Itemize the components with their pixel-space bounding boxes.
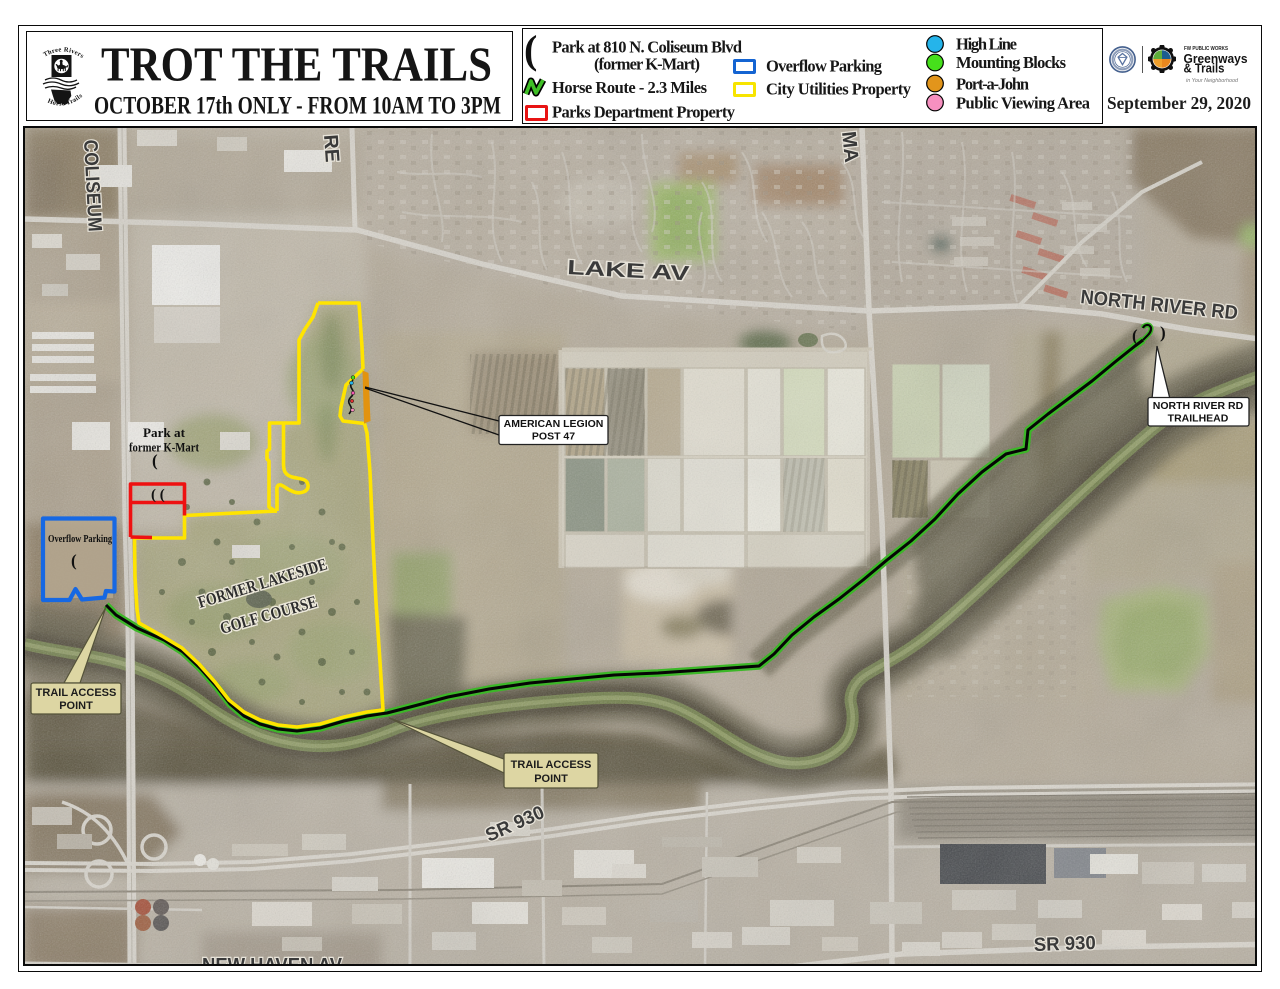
svg-text:Horse Route - 2.3 Miles: Horse Route - 2.3 Miles	[552, 78, 708, 97]
svg-text:TRAILHEAD: TRAILHEAD	[1168, 413, 1229, 425]
svg-text:High Line: High Line	[956, 35, 1017, 54]
svg-text:(: (	[152, 451, 158, 470]
svg-text:TROT THE TRAILS: TROT THE TRAILS	[101, 37, 492, 92]
svg-text:Public Viewing Area: Public Viewing Area	[956, 94, 1090, 113]
svg-text:POINT: POINT	[59, 700, 93, 712]
svg-text:(: (	[1132, 326, 1138, 345]
svg-text:in Your Neighborhood: in Your Neighborhood	[1186, 78, 1239, 84]
svg-text:): )	[1160, 323, 1166, 342]
svg-text:TRAIL ACCESS: TRAIL ACCESS	[511, 759, 592, 771]
svg-text:Overflow Parking: Overflow Parking	[766, 57, 883, 76]
svg-text:Port-a-John: Port-a-John	[956, 75, 1029, 94]
svg-text:former K-Mart: former K-Mart	[129, 441, 200, 455]
svg-text:Overflow Parking: Overflow Parking	[48, 533, 112, 545]
svg-text:City Utilities Property: City Utilities Property	[766, 80, 912, 99]
svg-text:NEW HAVEN AV: NEW HAVEN AV	[202, 955, 343, 966]
svg-text:( (: ( (	[151, 487, 165, 503]
svg-text:Park at: Park at	[143, 426, 186, 440]
svg-text:September 29, 2020: September 29, 2020	[1107, 93, 1251, 113]
svg-text:(: (	[71, 551, 77, 570]
svg-text:(former K-Mart): (former K-Mart)	[594, 55, 700, 74]
svg-text:OCTOBER 17th ONLY - FROM 10AM: OCTOBER 17th ONLY - FROM 10AM TO 3PM	[94, 91, 501, 120]
svg-text:SR 930: SR 930	[1033, 933, 1096, 956]
svg-text:AMERICAN LEGION: AMERICAN LEGION	[504, 418, 604, 430]
svg-text:TRAIL ACCESS: TRAIL ACCESS	[36, 687, 117, 699]
svg-text:POST 47: POST 47	[532, 431, 575, 443]
svg-text:Parks Department Property: Parks Department Property	[552, 103, 736, 122]
svg-text:RE: RE	[319, 134, 343, 163]
svg-text:Mounting Blocks: Mounting Blocks	[956, 53, 1067, 72]
svg-text:POINT: POINT	[534, 773, 568, 785]
svg-text:& Trails: & Trails	[1184, 61, 1225, 76]
svg-text:MA: MA	[837, 130, 862, 163]
svg-text:NORTH RIVER RD: NORTH RIVER RD	[1153, 400, 1244, 412]
